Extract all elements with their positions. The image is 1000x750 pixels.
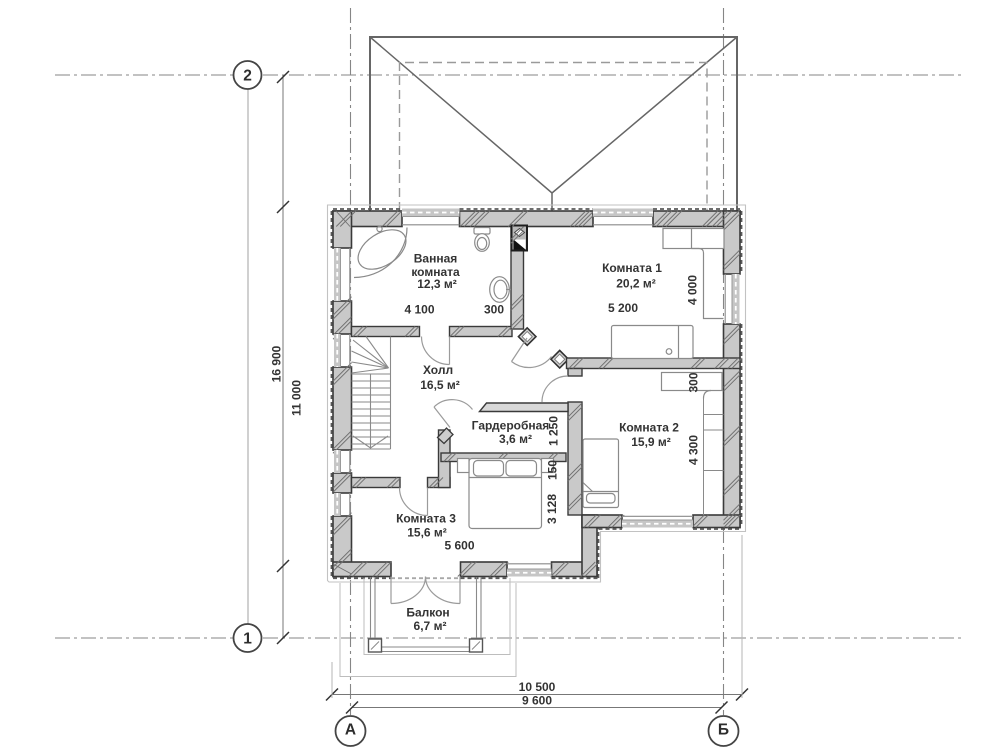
svg-text:20,2 м²: 20,2 м²: [616, 277, 656, 291]
svg-text:1: 1: [243, 631, 252, 648]
svg-text:4 000: 4 000: [686, 275, 700, 305]
svg-text:4 300: 4 300: [687, 435, 701, 465]
svg-text:4 100: 4 100: [404, 303, 434, 317]
svg-text:10 500: 10 500: [519, 680, 556, 694]
svg-text:Ванная: Ванная: [414, 252, 458, 266]
svg-text:А: А: [345, 722, 356, 739]
svg-text:3,6 м²: 3,6 м²: [499, 432, 532, 446]
svg-text:300: 300: [687, 372, 701, 392]
svg-text:5 200: 5 200: [608, 301, 638, 315]
svg-text:6,7 м²: 6,7 м²: [414, 619, 447, 633]
svg-text:Комната 3: Комната 3: [396, 512, 456, 526]
svg-text:Комната 1: Комната 1: [602, 261, 662, 275]
svg-text:16 900: 16 900: [270, 345, 284, 382]
svg-text:Комната 2: Комната 2: [619, 421, 679, 435]
svg-text:2: 2: [243, 68, 252, 85]
svg-text:15,9 м²: 15,9 м²: [631, 435, 671, 449]
svg-text:9 600: 9 600: [522, 694, 552, 708]
svg-text:15,6 м²: 15,6 м²: [407, 526, 447, 540]
svg-text:5 600: 5 600: [444, 539, 474, 553]
svg-text:11 000: 11 000: [290, 380, 304, 416]
svg-text:150: 150: [546, 460, 560, 480]
svg-text:3 128: 3 128: [545, 494, 559, 524]
svg-text:Б: Б: [718, 722, 729, 739]
svg-text:Балкон: Балкон: [406, 606, 449, 620]
svg-text:16,5 м²: 16,5 м²: [420, 378, 460, 392]
svg-text:300: 300: [484, 303, 504, 317]
svg-text:Холл: Холл: [423, 363, 453, 377]
svg-text:12,3 м²: 12,3 м²: [417, 277, 457, 291]
svg-text:1 250: 1 250: [547, 416, 561, 446]
svg-text:Гардеробная: Гардеробная: [472, 419, 550, 433]
